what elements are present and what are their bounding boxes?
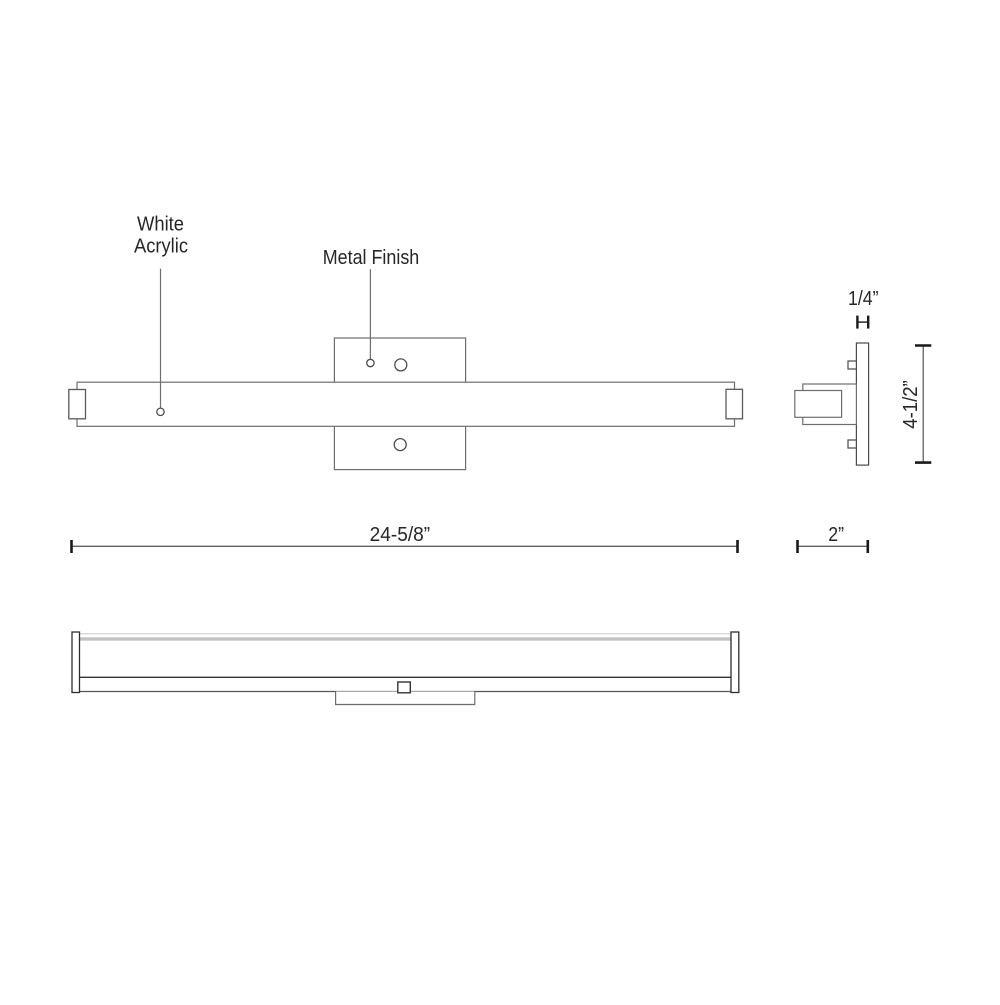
svg-text:Metal Finish: Metal Finish bbox=[323, 247, 420, 269]
svg-text:24-5/8”: 24-5/8” bbox=[370, 524, 431, 546]
svg-text:White: White bbox=[137, 214, 184, 236]
svg-text:1/4”: 1/4” bbox=[848, 288, 879, 310]
svg-text:4-1/2”: 4-1/2” bbox=[900, 380, 922, 429]
svg-text:2”: 2” bbox=[828, 524, 844, 546]
svg-text:Acrylic: Acrylic bbox=[134, 236, 188, 258]
